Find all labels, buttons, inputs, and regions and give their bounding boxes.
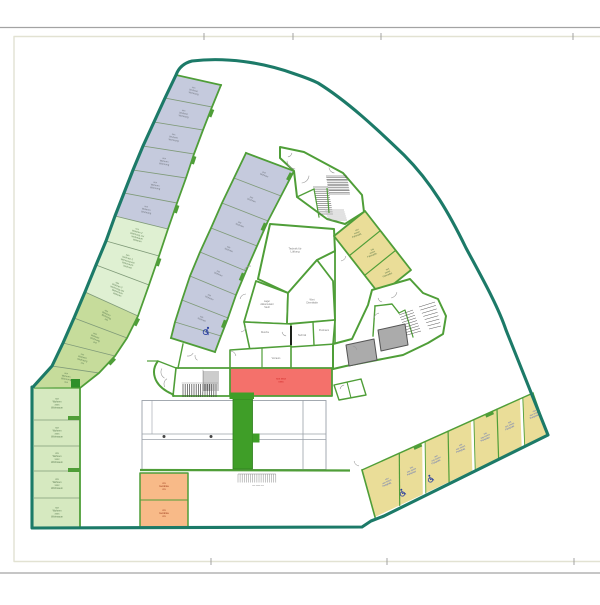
svg-text:Steril: Steril xyxy=(264,306,270,309)
svg-text:Wohnraum: Wohnraum xyxy=(51,406,63,409)
svg-text:xxxx: xxxx xyxy=(278,381,284,384)
svg-text:Wohnraum: Wohnraum xyxy=(51,461,63,464)
svg-text:Vorraum: Vorraum xyxy=(272,357,281,360)
svg-text:xxx xxxx xxx: xxx xxxx xxx xyxy=(252,485,265,487)
svg-text:Lüftung: Lüftung xyxy=(291,250,300,254)
svg-text:Technik: Technik xyxy=(298,334,307,337)
svg-text:Putzraum: Putzraum xyxy=(319,329,329,332)
svg-text:Wohnraum: Wohnraum xyxy=(51,435,63,438)
svg-text:Wohnraum: Wohnraum xyxy=(51,487,63,490)
svg-text:Chemikalie: Chemikalie xyxy=(306,301,318,304)
svg-text:Wohnraum: Wohnraum xyxy=(51,515,63,518)
svg-text:Dusche: Dusche xyxy=(261,331,270,334)
